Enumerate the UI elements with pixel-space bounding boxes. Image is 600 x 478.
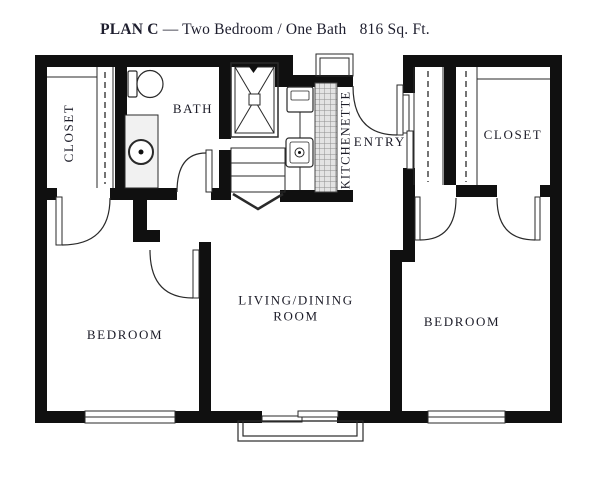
vanity-sink-icon [125,115,158,188]
door-arc [177,153,206,192]
kitchenette-label: KITCHENETTE [339,91,354,190]
kitchenette-fixtures [286,83,337,192]
floor-plan-drawing [0,0,600,478]
door-closet-right-1 [415,197,456,240]
closet-left-label: CLOSET [61,104,77,163]
door-bedroom-left [150,250,199,298]
window-bedroom-left [85,411,175,423]
toilet-icon [128,71,163,98]
bedroom-right-label: BEDROOM [424,314,500,330]
door-arc [353,86,397,135]
coat-closet-sliding-doors [403,95,413,169]
door-closet-right-2 [497,197,540,240]
wall-top-left [35,55,280,67]
wall-closet-left-bottom [35,188,57,200]
door-entry [353,85,403,135]
door-closet-left [56,197,110,245]
door-arc [497,198,535,240]
shower-icon [231,63,278,137]
closet-right-label: CLOSET [484,127,543,143]
living-dining-line2: ROOM [238,308,353,324]
bath-label: BATH [173,101,213,117]
door-arc [150,250,193,298]
wall-closet-right-bottom-2 [540,185,562,197]
bedroom-left-label: BEDROOM [87,327,163,343]
wall-left [35,55,47,423]
wall-entry-east-lower [403,168,415,197]
wall-right [550,55,562,423]
floor-plan: PLAN C — Two Bedroom / One Bath 816 Sq. … [0,0,600,478]
patio-door-slider [262,411,338,422]
bifold-door-icon [233,194,283,209]
wall-closet-right-bottom-1 [456,185,497,197]
wall-shower-divider-upper [219,55,231,139]
entry-label: ENTRY [354,134,407,150]
range-icon [287,87,313,112]
wall-top-right [403,55,562,67]
door-bath [177,150,212,192]
kitchen-sink-icon [286,138,313,167]
linen-closet [231,148,285,209]
window-bedroom-right [428,411,505,423]
kitchenette-counter-hatch [315,83,337,192]
living-dining-line1: LIVING/DINING [238,292,353,308]
wall-bedroom2-divider-upper [403,197,415,257]
wall-bottom-1 [35,411,85,423]
wall-entry-east-upper [403,55,415,93]
shower-head-icon [247,64,260,73]
wall-bottom-4 [505,411,562,423]
door-arc [420,198,456,240]
wall-closet-right-divider [444,67,456,185]
closet-right-details [403,67,550,185]
entry-stoop [316,54,353,76]
wall-hall-foot [133,230,160,242]
door-arc [62,198,110,245]
bath-fixtures [125,63,285,209]
wall-bedroom1-divider [199,242,211,423]
wall-bedroom2-divider-lower [390,257,402,411]
wall-bath-jamb [211,188,231,200]
living-dining-label: LIVING/DINING ROOM [238,292,353,323]
closet-left-details [47,67,113,188]
patio-balcony [238,421,363,441]
